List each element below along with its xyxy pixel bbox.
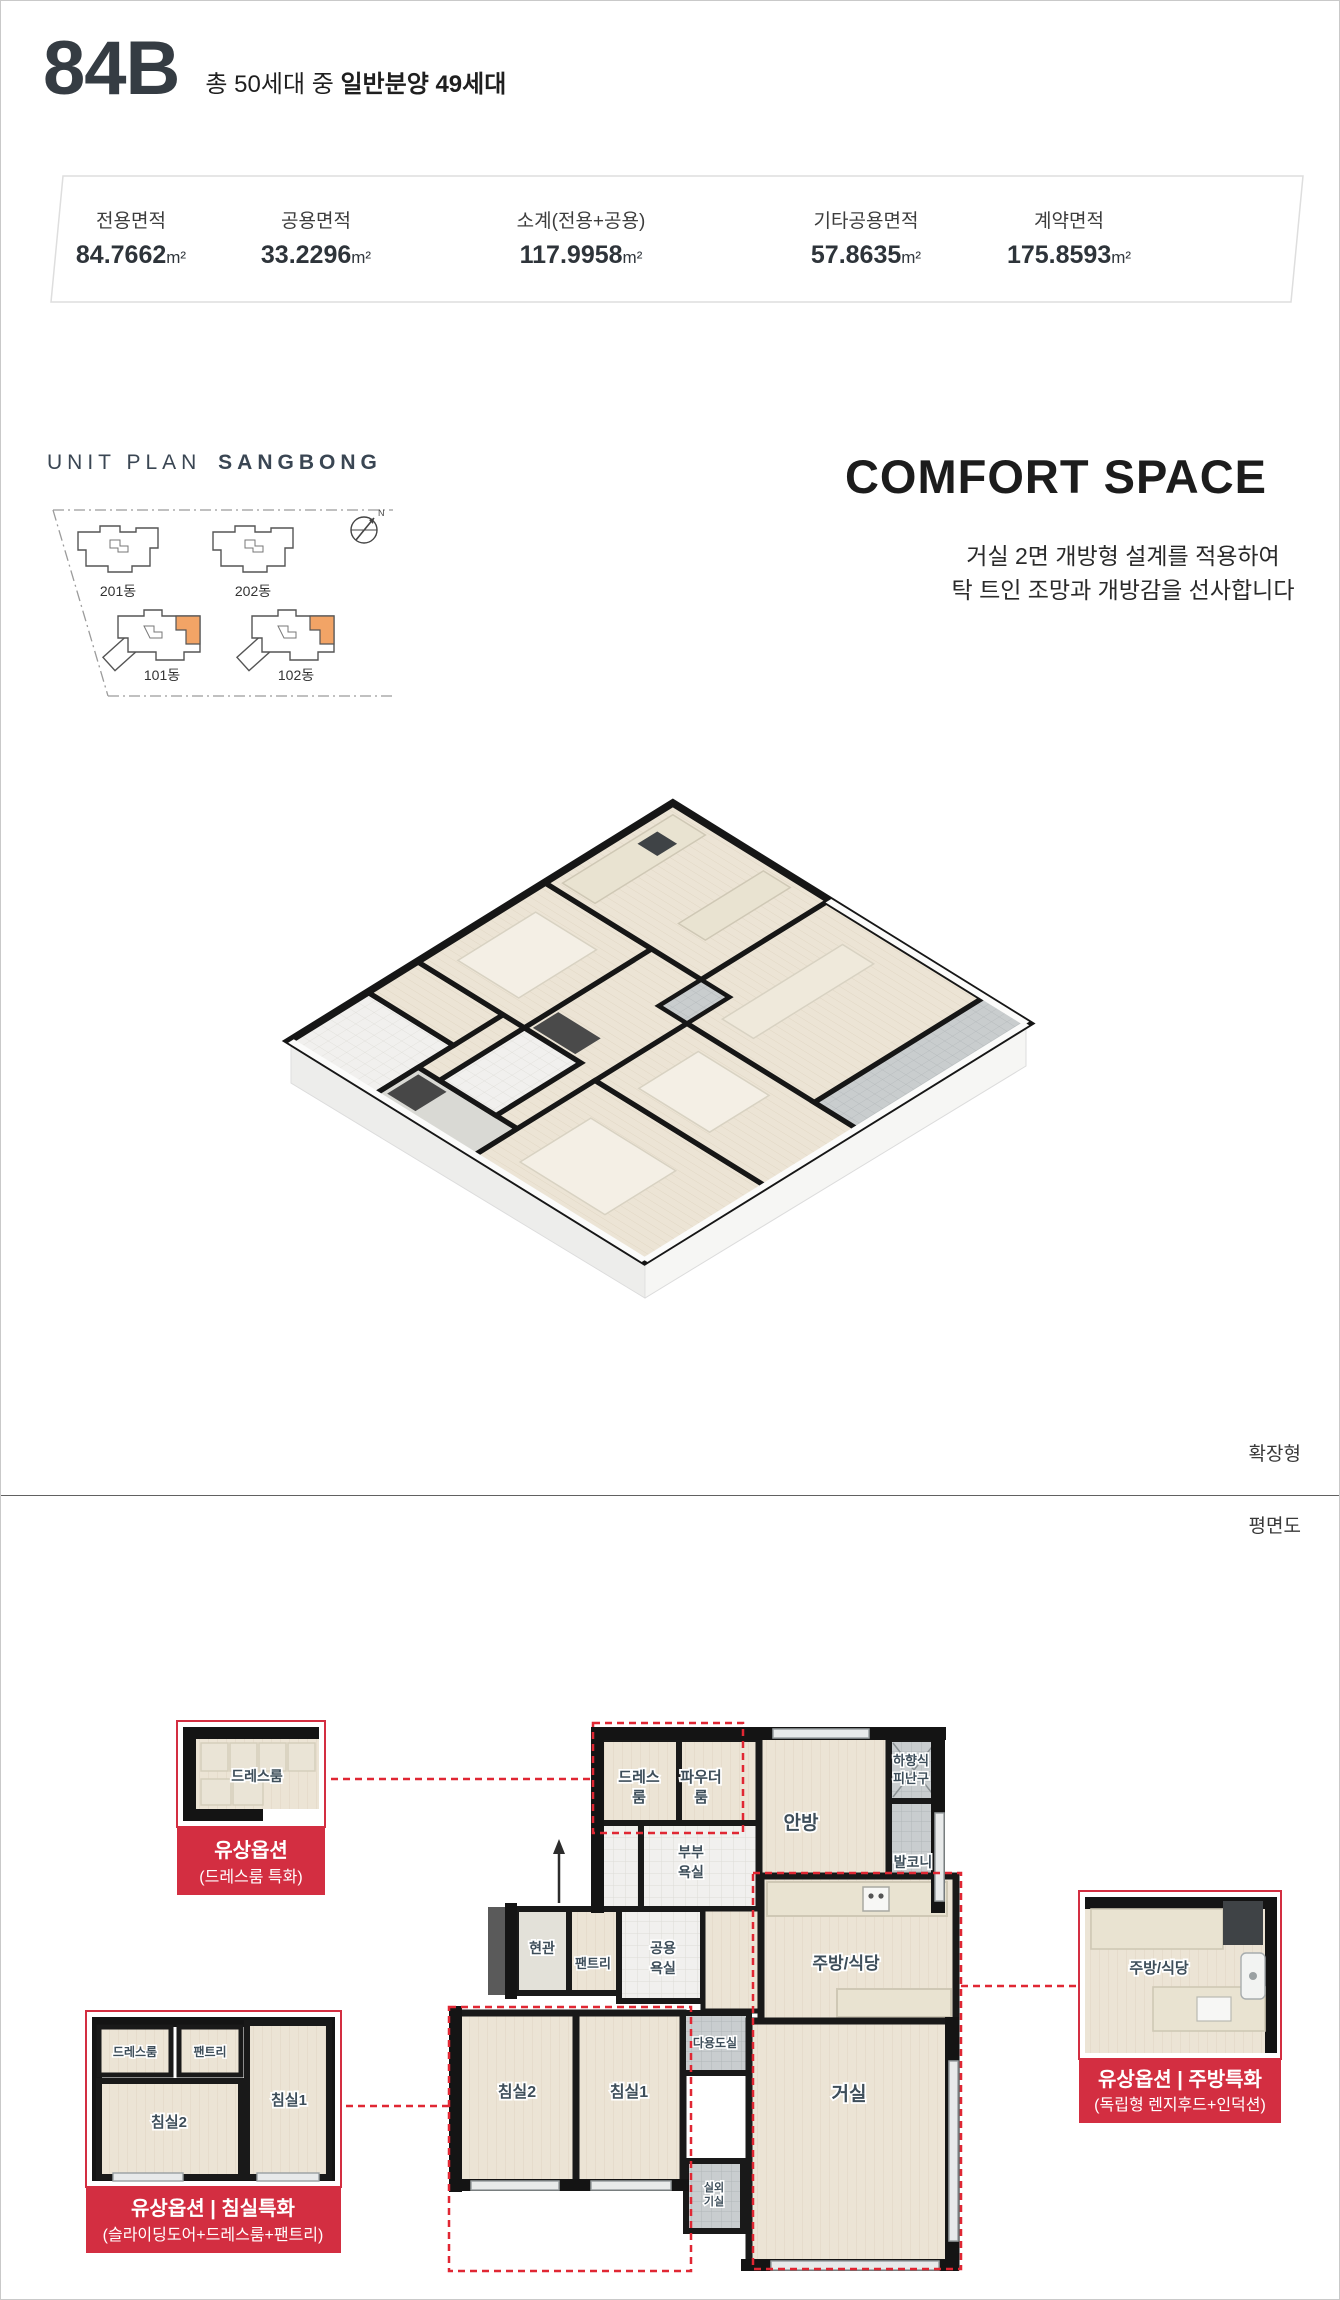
callout-kitchen-option: 주방/식당 유상옵션 | 주방특화 (독립형 렌지후드+인덕션) <box>1079 1891 1281 2123</box>
site-plan-map: 201동 202동 101동 102동 <box>26 496 406 706</box>
area-number: 117.9958 <box>520 241 623 269</box>
area-label: 공용면적 <box>261 206 371 233</box>
room-label-pantry: 팬트리 <box>575 1956 611 1971</box>
room-label-entrance: 현관 <box>529 1940 555 1956</box>
comfort-line-1: 거실 2면 개방형 설계를 적용하여 <box>952 539 1295 573</box>
callout-dress-title: 유상옵션 <box>214 1839 288 1862</box>
building-201: 201동 <box>78 526 158 599</box>
room-label-master: 안방 <box>784 1812 819 1834</box>
header: 84B 총 50세대 중 일반분양 49세대 <box>43 31 506 107</box>
main-floor-plan: 드레스 룸 파우더 룸 안방 하향식 피난구 발코니 부부 욕실 현관 팬트리 … <box>331 1723 1077 2271</box>
section-divider <box>1 1495 1339 1496</box>
room-label-hatch-2: 피난구 <box>893 1771 929 1786</box>
room-label-master-bath: 부부 <box>678 1844 704 1860</box>
floor-plan-section: 드레스 룸 파우더 룸 안방 하향식 피난구 발코니 부부 욕실 현관 팬트리 … <box>1 1691 1339 2299</box>
area-cell-subtotal: 소계(전용+공용) 117.9958m² <box>517 206 646 270</box>
entrance-arrow-icon <box>553 1839 565 1903</box>
room-label-powder-2: 룸 <box>694 1789 708 1806</box>
callout-dress-room-label: 드레스룸 <box>231 1768 283 1784</box>
room-label-living: 거실 <box>832 2083 867 2105</box>
callout-dress-subtitle: (드레스룸 특화) <box>199 1868 302 1886</box>
compass-icon: N <box>351 508 385 543</box>
building-102: 102동 <box>237 610 334 683</box>
iso-plan-tag: 확장형 <box>1181 1439 1301 1466</box>
room-label-dress-2: 룸 <box>632 1789 646 1806</box>
callout-bedroom-option: 드레스룸 팬트리 침실2 침실1 유상옵션 | 침실특화 (슬라이딩도어+드레스… <box>86 2011 341 2253</box>
unit-count-subtitle: 총 50세대 중 일반분양 49세대 <box>205 64 506 107</box>
room-label-powder: 파우더 <box>680 1769 721 1786</box>
room-label-master-bath-2: 욕실 <box>678 1864 704 1880</box>
area-value: 175.8593m² <box>1007 241 1131 270</box>
callout-kitchen-room-label: 주방/식당 <box>1129 1959 1189 1977</box>
unit-plan-heading: UNIT PLAN SANGBONG <box>47 451 382 475</box>
area-cell-exclusive: 전용면적 84.7662m² <box>76 206 186 270</box>
comfort-line-2: 탁 트인 조망과 개방감을 선사합니다 <box>952 573 1295 607</box>
area-number: 175.8593 <box>1007 241 1111 269</box>
callout-dress-option: 드레스룸 유상옵션 (드레스룸 특화) <box>177 1721 325 1895</box>
area-number: 84.7662 <box>76 241 166 269</box>
area-value: 33.2296m² <box>261 241 371 270</box>
room-label-common-bath-2: 욕실 <box>650 1960 676 1976</box>
room-label-bed2: 침실2 <box>498 2082 536 2101</box>
brochure-page: 84B 총 50세대 중 일반분양 49세대 전용면적 84.7662m² 공용… <box>0 0 1340 2300</box>
callout-bedroom-subtitle: (슬라이딩도어+드레스룸+팬트리) <box>103 2226 324 2244</box>
room-label-kitchen: 주방/식당 <box>812 1954 880 1973</box>
room-label-balcony: 발코니 <box>894 1854 933 1870</box>
isometric-floor-plan <box>241 731 1061 1371</box>
area-label: 기타공용면적 <box>811 206 921 233</box>
building-101-label: 101동 <box>144 667 180 683</box>
comfort-space-title: COMFORT SPACE <box>845 449 1267 504</box>
callout-bedroom-bed2-label: 침실2 <box>151 2114 187 2131</box>
callout-bedroom-dress-label: 드레스룸 <box>113 2044 157 2059</box>
room-label-dress: 드레스 <box>618 1769 660 1786</box>
building-202-label: 202동 <box>235 583 271 599</box>
subtitle-prefix: 총 50세대 중 <box>205 71 333 98</box>
entry-steps <box>488 1907 505 1995</box>
area-label: 계약면적 <box>1007 206 1131 233</box>
building-101: 101동 <box>103 610 200 683</box>
callout-bedroom-pantry-label: 팬트리 <box>193 2044 226 2059</box>
callout-bedroom-title: 유상옵션 | 침실특화 <box>131 2197 296 2220</box>
callout-bedroom-bed1-label: 침실1 <box>271 2092 307 2109</box>
callout-kitchen-title: 유상옵션 | 주방특화 <box>1098 2068 1263 2091</box>
area-value: 84.7662m² <box>76 241 186 270</box>
room-label-utility: 다용도실 <box>693 2035 737 2050</box>
area-unit: m² <box>623 248 643 267</box>
area-value: 57.8635m² <box>811 241 921 270</box>
area-number: 57.8635 <box>811 241 901 269</box>
area-unit: m² <box>901 248 921 267</box>
room-label-bed1: 침실1 <box>610 2082 648 2101</box>
area-value: 117.9958m² <box>517 241 646 270</box>
room-label-outdoor: 실외 <box>704 2180 724 2194</box>
area-cell-contract: 계약면적 175.8593m² <box>1007 206 1131 270</box>
callout-kitchen-subtitle: (독립형 렌지후드+인덕션) <box>1094 2096 1266 2114</box>
building-102-label: 102동 <box>278 667 314 683</box>
area-label: 소계(전용+공용) <box>517 206 646 233</box>
area-unit: m² <box>166 248 186 267</box>
unit-plan-heading-light: UNIT PLAN <box>47 451 201 474</box>
area-unit: m² <box>1111 248 1131 267</box>
building-202: 202동 <box>213 526 293 599</box>
area-unit: m² <box>351 248 371 267</box>
compass-north-label: N <box>378 508 385 518</box>
unit-type-title: 84B <box>43 31 179 107</box>
room-label-common-bath: 공용 <box>650 1940 676 1956</box>
room-label-outdoor-2: 기실 <box>704 2194 724 2208</box>
unit-plan-heading-bold: SANGBONG <box>218 451 382 474</box>
area-label: 전용면적 <box>76 206 186 233</box>
comfort-space-description: 거실 2면 개방형 설계를 적용하여 탁 트인 조망과 개방감을 선사합니다 <box>952 539 1295 607</box>
iso-plan-body <box>291 804 1026 1260</box>
room-label-hatch: 하향식 <box>893 1753 929 1768</box>
floor-plan-tag: 평면도 <box>1181 1511 1301 1538</box>
area-cell-other-common: 기타공용면적 57.8635m² <box>811 206 921 270</box>
building-201-label: 201동 <box>100 583 136 599</box>
subtitle-bold: 일반분양 49세대 <box>340 71 506 98</box>
area-cell-common: 공용면적 33.2296m² <box>261 206 371 270</box>
area-number: 33.2296 <box>261 241 351 269</box>
